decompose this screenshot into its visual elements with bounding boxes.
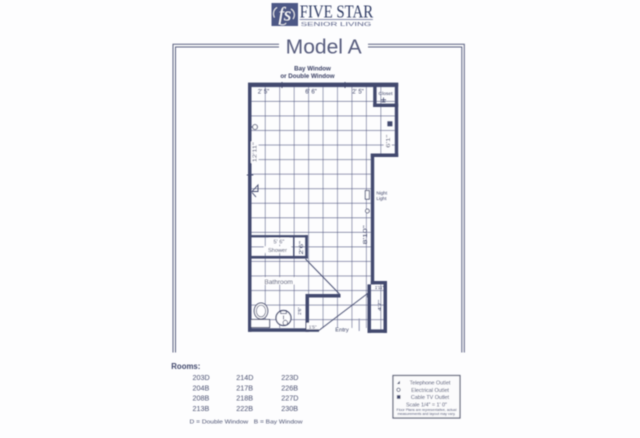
svg-text:214D: 214D	[236, 373, 253, 382]
svg-text:8'10": 8'10"	[363, 225, 369, 244]
svg-text:SENIOR LIVING: SENIOR LIVING	[301, 22, 372, 28]
svg-text:2' 5": 2' 5"	[352, 90, 364, 96]
svg-text:226B: 226B	[281, 383, 298, 392]
svg-text:208B: 208B	[193, 394, 210, 403]
svg-text:4'7": 4'7"	[377, 299, 382, 311]
svg-text:fs: fs	[278, 5, 291, 26]
svg-text:1'5": 1'5"	[309, 324, 317, 330]
svg-text:FIVE STAR: FIVE STAR	[300, 2, 373, 22]
svg-text:204B: 204B	[193, 383, 210, 392]
svg-text:measurements and layout may va: measurements and layout may vary.	[398, 412, 456, 416]
svg-text:Electrical Outlet: Electrical Outlet	[411, 388, 449, 394]
svg-text:1'11": 1'11"	[375, 285, 384, 290]
svg-text:Closet: Closet	[379, 91, 394, 97]
svg-text:Light: Light	[376, 196, 387, 201]
svg-text:222B: 222B	[236, 404, 253, 413]
svg-text:2'6": 2'6"	[297, 307, 302, 315]
svg-text:Night: Night	[376, 191, 387, 196]
svg-text:203D: 203D	[193, 373, 210, 382]
svg-text:213B: 213B	[193, 404, 210, 413]
svg-text:227D: 227D	[281, 394, 298, 403]
svg-text:Cable TV Outlet: Cable TV Outlet	[411, 395, 450, 401]
svg-text:Telephone Outlet: Telephone Outlet	[410, 381, 451, 387]
svg-text:Entry: Entry	[335, 328, 349, 334]
svg-text:Bathroom: Bathroom	[264, 280, 293, 286]
svg-text:D = Double Window B = Bay Wi: D = Double Window B = Bay Window	[190, 420, 304, 426]
svg-text:218B: 218B	[236, 394, 253, 403]
svg-text:230B: 230B	[281, 404, 298, 413]
svg-text:5' 6": 5' 6"	[273, 240, 284, 246]
svg-text:Bay Window: Bay Window	[294, 66, 331, 73]
svg-text:Rooms:: Rooms:	[171, 362, 200, 371]
svg-text:217B: 217B	[236, 383, 253, 392]
svg-text:Model A: Model A	[286, 37, 363, 59]
svg-text:2'6": 2'6"	[299, 241, 305, 255]
svg-text:223D: 223D	[281, 373, 298, 382]
svg-text:6'1": 6'1"	[386, 134, 392, 147]
svg-text:12'11": 12'11"	[252, 142, 258, 162]
svg-text:6' 6": 6' 6"	[305, 90, 317, 96]
svg-text:Shower: Shower	[268, 248, 287, 254]
svg-text:or Double Window: or Double Window	[280, 73, 334, 80]
svg-text:2' 5": 2' 5"	[258, 90, 270, 96]
